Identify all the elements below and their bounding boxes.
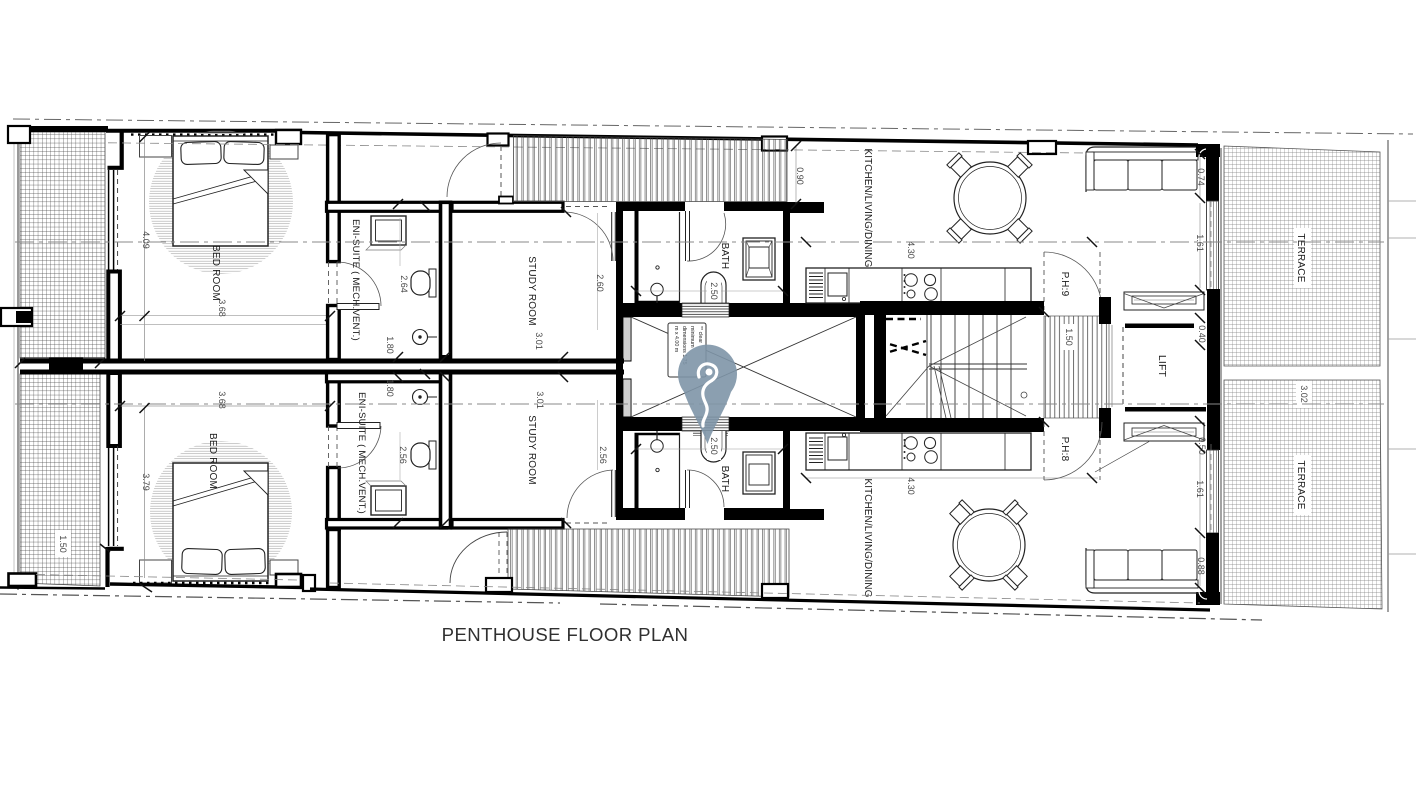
svg-text:BATH: BATH bbox=[719, 466, 730, 493]
svg-text:0.40: 0.40 bbox=[1197, 325, 1207, 343]
svg-text:minimum: minimum bbox=[689, 326, 695, 348]
svg-text:2.50: 2.50 bbox=[709, 282, 719, 300]
svg-text:3.01: 3.01 bbox=[535, 391, 545, 409]
svg-text:BED ROOM: BED ROOM bbox=[210, 245, 221, 301]
svg-text:TERRACE: TERRACE bbox=[1295, 460, 1306, 509]
svg-text:3.68: 3.68 bbox=[217, 299, 227, 317]
svg-text:3.02: 3.02 bbox=[1299, 385, 1309, 403]
svg-text:3.68: 3.68 bbox=[217, 391, 227, 409]
svg-text:PENTHOUSE FLOOR PLAN: PENTHOUSE FLOOR PLAN bbox=[442, 624, 689, 645]
svg-text:4.09: 4.09 bbox=[141, 231, 151, 249]
svg-text:2.64: 2.64 bbox=[399, 275, 409, 293]
svg-text:LIFT: LIFT bbox=[1156, 355, 1167, 378]
svg-text:STUDY ROOM: STUDY ROOM bbox=[526, 415, 537, 485]
svg-text:0.74: 0.74 bbox=[1196, 168, 1206, 186]
svg-text:BATH: BATH bbox=[719, 243, 730, 270]
svg-text:0.90: 0.90 bbox=[795, 167, 805, 185]
svg-text:ENI-SUITE ( MECH.VENT.): ENI-SUITE ( MECH.VENT.) bbox=[356, 392, 367, 514]
svg-text:4.30: 4.30 bbox=[906, 477, 916, 495]
svg-text:2.60: 2.60 bbox=[595, 274, 605, 292]
svg-text:3.79: 3.79 bbox=[141, 473, 151, 491]
svg-text:ENI-SUITE ( MECH.VENT.): ENI-SUITE ( MECH.VENT.) bbox=[350, 219, 361, 341]
svg-text:KITCHEN/LIVING/DINING: KITCHEN/LIVING/DINING bbox=[862, 148, 873, 267]
svg-text:4.30: 4.30 bbox=[906, 241, 916, 259]
svg-text:STUDY ROOM: STUDY ROOM bbox=[526, 256, 537, 326]
svg-text:KITCHEN/LIVING/DINING: KITCHEN/LIVING/DINING bbox=[862, 478, 873, 597]
svg-text:2.56: 2.56 bbox=[398, 446, 408, 464]
svg-text:1.80: 1.80 bbox=[385, 336, 395, 354]
svg-text:1.50: 1.50 bbox=[58, 535, 68, 553]
svg-text:1.61: 1.61 bbox=[1195, 234, 1205, 252]
svg-text:** clear: ** clear bbox=[697, 326, 703, 343]
svg-text:2.50: 2.50 bbox=[709, 437, 719, 455]
svg-text:1.80: 1.80 bbox=[385, 379, 395, 397]
svg-text:P.H:9: P.H:9 bbox=[1059, 272, 1070, 297]
svg-text:2.56: 2.56 bbox=[598, 446, 608, 464]
svg-text:1.50: 1.50 bbox=[1064, 328, 1074, 346]
svg-text:3.01: 3.01 bbox=[534, 332, 544, 350]
svg-text:TERRACE: TERRACE bbox=[1295, 233, 1306, 282]
svg-text:BED ROOM: BED ROOM bbox=[207, 433, 218, 489]
svg-text:P.H:8: P.H:8 bbox=[1059, 437, 1070, 462]
svg-text:1.61: 1.61 bbox=[1195, 480, 1205, 498]
svg-text:m x 4.00 m: m x 4.00 m bbox=[673, 326, 679, 353]
